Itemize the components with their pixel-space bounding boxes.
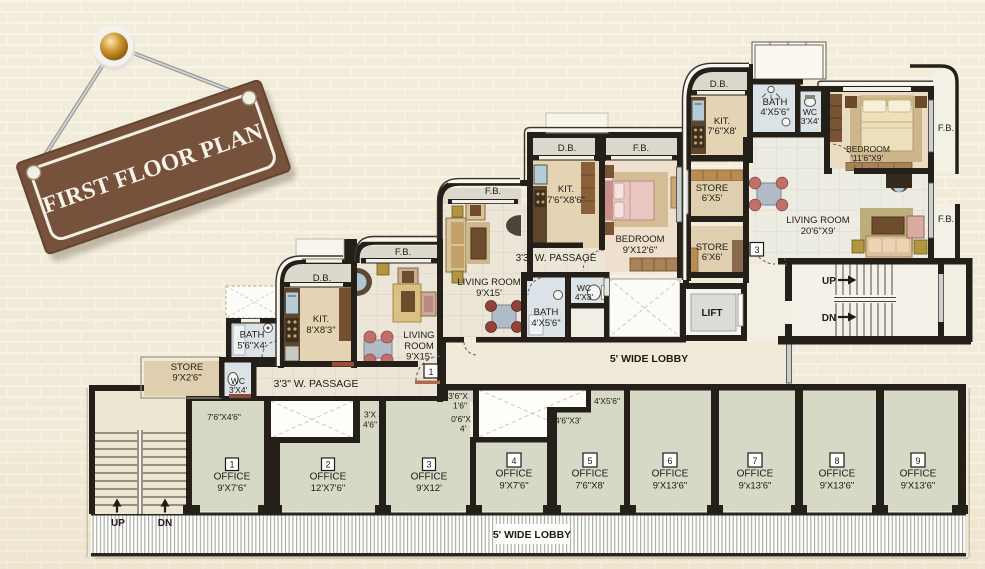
svg-text:9'x13'6": 9'x13'6" [739, 481, 772, 492]
svg-text:4'X3': 4'X3' [575, 292, 594, 302]
svg-text:D.B.: D.B. [558, 143, 576, 154]
svg-text:7'6"X8': 7'6"X8' [575, 481, 604, 492]
svg-text:3'3" W. PASSAGE: 3'3" W. PASSAGE [516, 253, 597, 264]
svg-text:6: 6 [667, 456, 672, 466]
svg-text:8: 8 [834, 456, 839, 466]
svg-text:4: 4 [511, 456, 516, 466]
svg-text:LIFT: LIFT [701, 308, 722, 319]
svg-text:3'X4': 3'X4' [801, 116, 820, 126]
svg-text:KIT.: KIT. [313, 314, 329, 325]
svg-text:OFFICE: OFFICE [214, 472, 251, 483]
svg-text:3'X4': 3'X4' [229, 385, 248, 395]
svg-text:OFFICE: OFFICE [411, 472, 448, 483]
svg-text:OFFICE: OFFICE [496, 469, 533, 480]
svg-text:OFFICE: OFFICE [310, 472, 347, 483]
svg-text:9'X2'6": 9'X2'6" [172, 373, 201, 384]
svg-text:LIVING ROOM: LIVING ROOM [457, 277, 520, 288]
svg-text:7'6"X8': 7'6"X8' [707, 126, 736, 137]
svg-text:9'X7'6": 9'X7'6" [217, 483, 246, 494]
svg-text:4'X5'6": 4'X5'6" [760, 107, 789, 118]
svg-text:6'X6': 6'X6' [702, 252, 723, 263]
svg-text:1: 1 [428, 367, 433, 377]
svg-text:9'X13'6": 9'X13'6" [820, 481, 854, 492]
svg-text:3: 3 [754, 245, 759, 255]
svg-text:F.B.: F.B. [485, 186, 501, 197]
svg-text:9'X13'6": 9'X13'6" [653, 481, 687, 492]
svg-text:4': 4' [460, 424, 467, 434]
svg-text:F.B.: F.B. [633, 143, 649, 154]
svg-text:UP: UP [822, 276, 836, 287]
svg-text:9'X12'6": 9'X12'6" [623, 245, 657, 256]
svg-text:9'X15': 9'X15' [476, 288, 502, 299]
svg-text:D.B.: D.B. [313, 273, 331, 284]
svg-text:5' WIDE LOBBY: 5' WIDE LOBBY [610, 353, 688, 365]
svg-text:7: 7 [752, 456, 757, 466]
svg-text:11'6"X9': 11'6"X9' [853, 153, 884, 163]
svg-text:3'3" W. PASSAGE: 3'3" W. PASSAGE [274, 378, 359, 390]
svg-text:9'X15': 9'X15' [406, 352, 432, 363]
svg-text:2: 2 [325, 460, 330, 470]
svg-text:ROOM: ROOM [404, 341, 434, 352]
svg-text:F.B.: F.B. [395, 247, 411, 258]
svg-text:STORE: STORE [171, 362, 204, 373]
svg-text:5: 5 [587, 456, 592, 466]
svg-text:5'6"X4': 5'6"X4' [237, 341, 266, 352]
svg-text:OFFICE: OFFICE [900, 469, 937, 480]
svg-text:4'X5'6": 4'X5'6" [531, 318, 560, 329]
svg-text:7'6"X8'6": 7'6"X8'6" [547, 195, 585, 206]
svg-text:UP: UP [111, 518, 125, 529]
svg-text:LIVING ROOM: LIVING ROOM [786, 215, 849, 226]
svg-text:4'6": 4'6" [363, 420, 377, 430]
svg-text:DN: DN [158, 518, 172, 529]
svg-text:8'X8'3": 8'X8'3" [306, 325, 335, 336]
svg-text:5' WIDE LOBBY: 5' WIDE LOBBY [493, 529, 571, 541]
svg-text:1: 1 [229, 460, 234, 470]
svg-text:OFFICE: OFFICE [572, 469, 609, 480]
svg-text:9'X7'6": 9'X7'6" [499, 481, 528, 492]
svg-text:D.B.: D.B. [710, 79, 728, 90]
svg-text:4'6"X3': 4'6"X3' [555, 416, 581, 426]
svg-text:0'6"X: 0'6"X [451, 414, 471, 424]
svg-text:3'X: 3'X [364, 410, 376, 420]
svg-text:3: 3 [426, 460, 431, 470]
svg-text:KIT.: KIT. [558, 184, 574, 195]
svg-text:6'X5': 6'X5' [702, 193, 723, 204]
svg-text:3'6"X: 3'6"X [448, 391, 468, 401]
svg-text:4'X5'6": 4'X5'6" [594, 396, 620, 406]
svg-text:BEDROOM: BEDROOM [615, 234, 664, 245]
svg-text:7'6"X4'6": 7'6"X4'6" [207, 412, 241, 422]
svg-text:9: 9 [915, 456, 920, 466]
svg-text:BATH: BATH [240, 330, 265, 341]
svg-text:9'X13'6": 9'X13'6" [901, 481, 935, 492]
svg-text:9'X12': 9'X12' [416, 483, 442, 494]
svg-text:DN: DN [822, 313, 836, 324]
svg-text:F.B.: F.B. [938, 214, 954, 225]
svg-text:BATH: BATH [534, 307, 559, 318]
svg-text:20'6"X9': 20'6"X9' [801, 226, 836, 237]
svg-text:OFFICE: OFFICE [819, 469, 856, 480]
svg-text:1'6": 1'6" [453, 401, 467, 411]
svg-text:12'X7'6": 12'X7'6" [311, 483, 345, 494]
svg-text:F.B.: F.B. [938, 123, 954, 134]
svg-text:OFFICE: OFFICE [652, 469, 689, 480]
svg-text:OFFICE: OFFICE [737, 469, 774, 480]
svg-text:LIVING: LIVING [403, 330, 434, 341]
